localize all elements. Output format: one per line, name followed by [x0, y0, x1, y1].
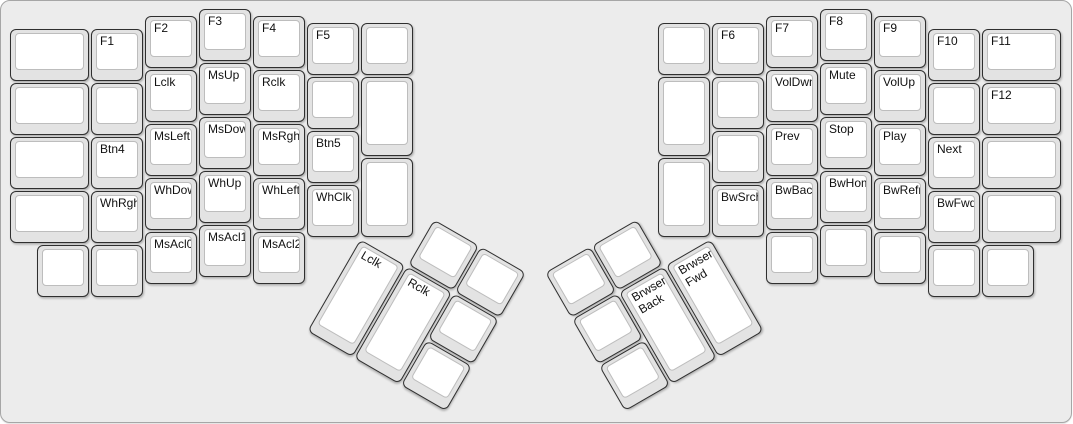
keycap-top: BwSrch: [717, 189, 759, 226]
keycap-base: MsAcl0: [145, 232, 197, 284]
keycap-base: F9: [874, 16, 926, 68]
keycap-base: [874, 232, 926, 284]
key-msacl0[interactable]: MsAcl0: [144, 231, 198, 285]
keycap-base: [91, 83, 143, 135]
keycap-top: [825, 229, 867, 266]
keycap-top: F12: [987, 87, 1056, 124]
keycap-top: MsUp: [204, 67, 246, 104]
keycap-label: BwRefr: [883, 184, 921, 198]
key-btn4[interactable]: Btn4: [90, 136, 144, 190]
keycap-label: MsLeft: [154, 130, 190, 144]
keycap-top: F8: [825, 13, 867, 50]
key-bwback[interactable]: BwBack: [765, 177, 819, 231]
keycap-label: F3: [208, 15, 222, 29]
key-whdown[interactable]: WhDown: [144, 177, 198, 231]
keycap-label: MsUp: [208, 69, 239, 83]
keycap-base: Rclk: [253, 70, 305, 122]
keycap-label: BwHome: [829, 177, 867, 191]
keycap-top: MsAcl0: [150, 236, 192, 273]
keycap-label: WhDown: [154, 184, 192, 198]
keycap-top: [96, 87, 138, 124]
keycap-base: F7: [766, 16, 818, 68]
key-blank[interactable]: [306, 76, 360, 130]
keycap-top: Next: [933, 141, 975, 178]
keycap-base: WhLeft: [253, 178, 305, 230]
keycap-base: F12: [982, 83, 1061, 135]
keycap-label: MsAcl1: [208, 231, 246, 245]
keycap-top: F9: [879, 20, 921, 57]
key-blank[interactable]: [711, 130, 765, 184]
keycap-base: [10, 191, 89, 243]
keycap-base: MsDown: [199, 117, 251, 169]
keycap-base: MsLeft: [145, 124, 197, 176]
keycap-top: BwFwd: [933, 195, 975, 232]
keycap-base: MsAcl2: [253, 232, 305, 284]
keycap-top: MsRght: [258, 128, 300, 165]
keycap-top: MsAcl1: [204, 229, 246, 266]
key-blank[interactable]: [9, 190, 90, 244]
keycap-top: F5: [312, 27, 354, 64]
keycap-base: WhUp: [199, 171, 251, 223]
keycap-base: [982, 137, 1061, 189]
keycap-base: MsAcl1: [199, 225, 251, 277]
keycap-base: [361, 23, 413, 75]
key-bwrefr[interactable]: BwRefr: [873, 177, 927, 231]
key-msacl2[interactable]: MsAcl2: [252, 231, 306, 285]
keycap-label: F2: [154, 22, 168, 36]
key-blank[interactable]: [9, 28, 90, 82]
key-blank[interactable]: [360, 157, 414, 238]
key-blank[interactable]: [765, 231, 819, 285]
keycap-top: [771, 236, 813, 273]
key-blank[interactable]: [360, 76, 414, 157]
key-blank[interactable]: [360, 22, 414, 76]
key-msrght[interactable]: MsRght: [252, 123, 306, 177]
key-msup[interactable]: MsUp: [198, 62, 252, 116]
keycap-label: Mute: [829, 69, 856, 83]
keycap-base: WhRght: [91, 191, 143, 243]
key-voldwn[interactable]: VolDwn: [765, 69, 819, 123]
keycap-top: F6: [717, 27, 759, 64]
keycap-base: BwRefr: [874, 178, 926, 230]
keycap-top: Play: [879, 128, 921, 165]
key-blank[interactable]: [927, 82, 981, 136]
key-blank[interactable]: [657, 76, 711, 157]
keycap-label: Lclk: [358, 249, 383, 272]
keycap-top: [15, 33, 84, 70]
keycap-base: VolUp: [874, 70, 926, 122]
keycap-top: [663, 81, 705, 145]
key-blank[interactable]: [9, 136, 90, 190]
keycap-label: Lclk: [154, 76, 175, 90]
keycap-base: [361, 77, 413, 156]
keycap-label: F6: [721, 29, 735, 43]
keycap-base: [982, 245, 1034, 297]
keycap-base: BwFwd: [928, 191, 980, 243]
keyboard-layout-screen: F1F2F3F4F5LclkMsUpRclkBtn4MsLeftMsDownMs…: [0, 0, 1073, 424]
keycap-top: Btn4: [96, 141, 138, 178]
keycap-base: [361, 158, 413, 237]
key-f6[interactable]: F6: [711, 22, 765, 76]
keycap-label: BwFwd: [937, 197, 975, 211]
keycap-top: [312, 81, 354, 118]
keycap-top: [15, 141, 84, 178]
key-f10[interactable]: F10: [927, 28, 981, 82]
key-blank[interactable]: [657, 22, 711, 76]
keycap-base: F1: [91, 29, 143, 81]
keycap-top: WhRght: [96, 195, 138, 232]
keycap-top: WhUp: [204, 175, 246, 212]
keycap-label: WhLeft: [262, 184, 300, 198]
key-bwsrch[interactable]: BwSrch: [711, 184, 765, 238]
key-blank[interactable]: [927, 244, 981, 298]
keycap-base: F10: [928, 29, 980, 81]
keycap-top: [987, 141, 1056, 178]
keycap-top: [15, 195, 84, 232]
keycap-top: F10: [933, 33, 975, 70]
keycap-label: WhUp: [208, 177, 241, 191]
keycap-base: [37, 245, 89, 297]
keycap-base: [982, 191, 1061, 243]
keycap-top: [663, 27, 705, 64]
keycap-base: Prev: [766, 124, 818, 176]
key-blank[interactable]: [36, 244, 90, 298]
key-f4[interactable]: F4: [252, 15, 306, 69]
keycap-top: F1: [96, 33, 138, 70]
key-msleft[interactable]: MsLeft: [144, 123, 198, 177]
keycap-top: VolUp: [879, 74, 921, 111]
keycap-top: BwRefr: [879, 182, 921, 219]
key-volup[interactable]: VolUp: [873, 69, 927, 123]
key-lclk[interactable]: Lclk: [144, 69, 198, 123]
keycap-base: [712, 77, 764, 129]
keycap-label: WhClk: [316, 191, 351, 205]
keycap-label: F7: [775, 22, 789, 36]
key-f8[interactable]: F8: [819, 8, 873, 62]
keycap-label: VolUp: [883, 76, 915, 90]
keycap-top: MsDown: [204, 121, 246, 158]
keycap-base: Btn5: [307, 131, 359, 183]
keycap-base: [91, 245, 143, 297]
key-f12[interactable]: F12: [981, 82, 1062, 136]
keycap-top: F4: [258, 20, 300, 57]
keycap-top: [663, 162, 705, 226]
keycap-top: WhClk: [312, 189, 354, 226]
keycap-top: Btn5: [312, 135, 354, 172]
keycap-base: BwSrch: [712, 185, 764, 237]
key-f5[interactable]: F5: [306, 22, 360, 76]
keycap-label: VolDwn: [775, 76, 813, 90]
keycap-base: BwHome: [820, 171, 872, 223]
key-blank[interactable]: [9, 82, 90, 136]
keycap-top: [933, 249, 975, 286]
keycap-base: F4: [253, 16, 305, 68]
key-whrght[interactable]: WhRght: [90, 190, 144, 244]
keycap-top: [987, 249, 1029, 286]
keycap-base: WhClk: [307, 185, 359, 237]
keycap-base: F6: [712, 23, 764, 75]
keycap-top: WhDown: [150, 182, 192, 219]
keycap-label: F12: [991, 89, 1012, 103]
keycap-top: [933, 87, 975, 124]
keycap-top: F2: [150, 20, 192, 57]
key-mute[interactable]: Mute: [819, 62, 873, 116]
keycap-base: [658, 77, 710, 156]
keycap-label: MsAcl2: [262, 238, 300, 252]
keycap-label: F4: [262, 22, 276, 36]
keycap-label: Prev: [775, 130, 800, 144]
keycap-top: [15, 87, 84, 124]
keycap-label: F5: [316, 29, 330, 43]
keycap-label: BwSrch: [721, 191, 759, 205]
keycap-top: [879, 236, 921, 273]
keycap-label: Play: [883, 130, 906, 144]
keycap-top: BwHome: [825, 175, 867, 212]
keycap-top: [987, 195, 1056, 232]
keycap-label: F8: [829, 15, 843, 29]
keycap-top: [717, 135, 759, 172]
key-f1[interactable]: F1: [90, 28, 144, 82]
keycap-base: [712, 131, 764, 183]
key-blank[interactable]: [981, 244, 1035, 298]
keycap-base: F8: [820, 9, 872, 61]
key-msacl1[interactable]: MsAcl1: [198, 224, 252, 278]
keycap-base: MsRght: [253, 124, 305, 176]
key-bwfwd[interactable]: BwFwd: [927, 190, 981, 244]
keycap-top: F3: [204, 13, 246, 50]
keycap-top: [366, 162, 408, 226]
keycap-base: [10, 137, 89, 189]
keycap-base: [307, 77, 359, 129]
key-f7[interactable]: F7: [765, 15, 819, 69]
key-play[interactable]: Play: [873, 123, 927, 177]
keycap-base: Play: [874, 124, 926, 176]
key-blank[interactable]: [873, 231, 927, 285]
keycap-top: Mute: [825, 67, 867, 104]
key-whup[interactable]: WhUp: [198, 170, 252, 224]
key-blank[interactable]: [90, 82, 144, 136]
keycap-label: Brwser Back: [630, 274, 676, 317]
keycap-top: [465, 252, 520, 305]
keycap-top: MsAcl2: [258, 236, 300, 273]
key-blank[interactable]: [981, 190, 1062, 244]
key-blank[interactable]: [981, 136, 1062, 190]
keycap-base: MsUp: [199, 63, 251, 115]
key-btn5[interactable]: Btn5: [306, 130, 360, 184]
key-blank[interactable]: [90, 244, 144, 298]
keycap-base: Next: [928, 137, 980, 189]
keycap-base: [766, 232, 818, 284]
keycap-top: BwBack: [771, 182, 813, 219]
key-f3[interactable]: F3: [198, 8, 252, 62]
keycap-top: F11: [987, 33, 1056, 70]
keycap-top: VolDwn: [771, 74, 813, 111]
key-next[interactable]: Next: [927, 136, 981, 190]
keycap-top: [598, 225, 653, 278]
keyboard: F1F2F3F4F5LclkMsUpRclkBtn4MsLeftMsDownMs…: [0, 0, 1073, 424]
keycap-base: BwBack: [766, 178, 818, 230]
keycap-top: F7: [771, 20, 813, 57]
keycap-label: Stop: [829, 123, 854, 137]
keycap-label: WhRght: [100, 197, 138, 211]
keycap-base: [928, 245, 980, 297]
key-f9[interactable]: F9: [873, 15, 927, 69]
keycap-top: [42, 249, 84, 286]
key-blank[interactable]: [819, 224, 873, 278]
key-blank[interactable]: [711, 76, 765, 130]
key-whleft[interactable]: WhLeft: [252, 177, 306, 231]
keycap-label: Next: [937, 143, 962, 157]
keycap-top: Prev: [771, 128, 813, 165]
keycap-top: [717, 81, 759, 118]
keycap-top: WhLeft: [258, 182, 300, 219]
key-prev[interactable]: Prev: [765, 123, 819, 177]
key-rclk[interactable]: Rclk: [252, 69, 306, 123]
keycap-base: [658, 23, 710, 75]
keycap-top: MsLeft: [150, 128, 192, 165]
keycap-base: Btn4: [91, 137, 143, 189]
keycap-top: [366, 27, 408, 64]
keycap-label: Btn4: [100, 143, 125, 157]
keycap-top: [96, 249, 138, 286]
keycap-top: Stop: [825, 121, 867, 158]
keycap-base: [928, 83, 980, 135]
keycap-base: F11: [982, 29, 1061, 81]
keycap-base: Lclk: [145, 70, 197, 122]
key-blank[interactable]: [657, 157, 711, 238]
key-msdown[interactable]: MsDown: [198, 116, 252, 170]
keycap-top: Rclk: [258, 74, 300, 111]
keycap-base: F5: [307, 23, 359, 75]
keycap-base: F2: [145, 16, 197, 68]
keycap-label: F11: [991, 35, 1011, 49]
keycap-label: BwBack: [775, 184, 813, 198]
keycap-label: Rclk: [405, 276, 432, 300]
keycap-base: [820, 225, 872, 277]
keycap-label: Btn5: [316, 137, 341, 151]
keycap-base: Stop: [820, 117, 872, 169]
keycap-label: F9: [883, 22, 897, 36]
key-stop[interactable]: Stop: [819, 116, 873, 170]
keycap-base: VolDwn: [766, 70, 818, 122]
keycap-base: [658, 158, 710, 237]
key-whclk[interactable]: WhClk: [306, 184, 360, 238]
keycap-top: [366, 81, 408, 145]
keycap-label: MsDown: [208, 123, 246, 137]
key-f2[interactable]: F2: [144, 15, 198, 69]
keycap-base: WhDown: [145, 178, 197, 230]
keycap-base: [10, 29, 89, 81]
keycap-base: F3: [199, 9, 251, 61]
keycap-label: Brwser Fwd: [676, 247, 722, 290]
keycap-top: Lclk: [150, 74, 192, 111]
keycap-base: [10, 83, 89, 135]
keycap-label: F1: [100, 35, 114, 49]
key-bwhome[interactable]: BwHome: [819, 170, 873, 224]
keycap-base: Mute: [820, 63, 872, 115]
keycap-label: Rclk: [262, 76, 285, 90]
keycap-label: MsRght: [262, 130, 300, 144]
key-f11[interactable]: F11: [981, 28, 1062, 82]
keycap-label: MsAcl0: [154, 238, 192, 252]
keycap-label: F10: [937, 35, 958, 49]
